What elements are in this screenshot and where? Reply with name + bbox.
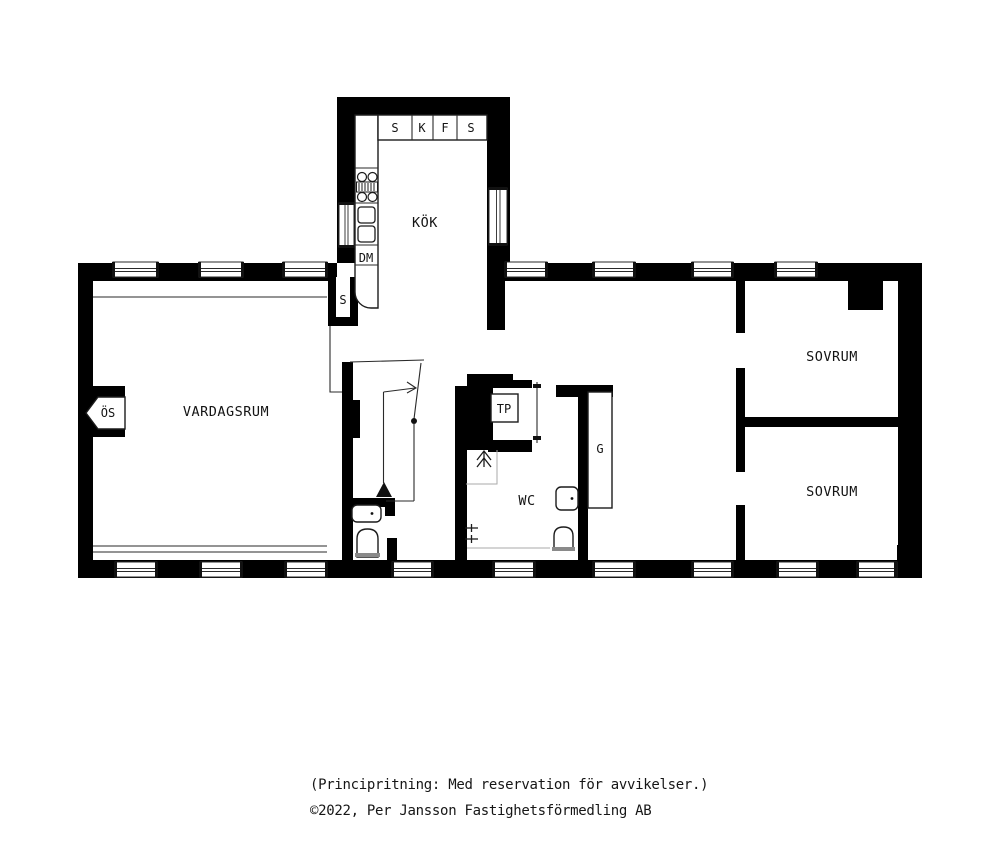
room-label-wc: WC (518, 493, 535, 509)
wc-right-wall (578, 386, 588, 560)
room-label-bedroom-bottom: SOVRUM (806, 484, 858, 500)
direction-arrowhead (407, 382, 416, 393)
entrance-arrow-icon (376, 482, 392, 497)
toilet-base (552, 547, 575, 551)
tp-top-bar-step (513, 380, 532, 388)
kitchen-fixtures (355, 115, 487, 308)
window (391, 562, 434, 577)
window (198, 262, 244, 277)
room-label-bedroom-top: SOVRUM (806, 349, 858, 365)
entry-threshold-line (350, 360, 424, 362)
cabinet-label-1: S (391, 121, 398, 135)
chimney-block (848, 281, 883, 310)
window (691, 262, 734, 277)
tp-top-bar (467, 374, 513, 388)
caption-line-1: (Principritning: Med reservation för avv… (310, 772, 708, 798)
window (199, 562, 243, 577)
cabinet-label-4: S (467, 121, 474, 135)
window (592, 262, 636, 277)
window (284, 562, 328, 577)
hall-left-wall (342, 362, 353, 560)
toilet-small-icon (357, 529, 378, 557)
wardrobe-label: G (596, 442, 603, 456)
kitchen-wall-top (337, 97, 510, 115)
dishwasher-label: DM (359, 251, 373, 265)
doorway-line (330, 326, 342, 392)
caption: (Principritning: Med reservation för avv… (310, 772, 708, 824)
hall-closet-label: S (339, 293, 346, 307)
bedroom-wall-upper (736, 263, 745, 333)
drying-cabinet-label: TP (497, 402, 511, 416)
washbasin-small-icon (352, 505, 381, 522)
shaft-block (455, 386, 493, 450)
tp-bottom-bar (488, 440, 532, 452)
floor-plan-drawing: KÖK VARDAGSRUM SOVRUM SOVRUM WC S K F S … (0, 0, 1000, 843)
door-pivot-dot (411, 418, 417, 424)
cabinet-label-3: F (441, 121, 448, 135)
toilet-icon (554, 527, 573, 550)
window (114, 562, 158, 577)
entry-door-leaf (414, 363, 421, 419)
windows-bottom (114, 562, 897, 577)
vent-arrow-icon (477, 451, 491, 467)
window (339, 202, 354, 248)
room-label-living-room: VARDAGSRUM (183, 404, 269, 420)
window (776, 562, 819, 577)
toilet-small-base (355, 553, 380, 557)
living-room-details (86, 297, 342, 552)
pilaster-bottom-right (897, 545, 922, 578)
window (112, 262, 159, 277)
stove-icon (357, 173, 378, 202)
floor-plan-page: KÖK VARDAGSRUM SOVRUM SOVRUM WC S K F S … (0, 0, 1000, 843)
caption-line-2: ©2022, Per Jansson Fastighetsförmedling … (310, 798, 708, 824)
window (592, 562, 636, 577)
bedroom-divider-wall (736, 417, 898, 427)
window (492, 562, 536, 577)
washbasin-icon (556, 487, 578, 510)
window (504, 262, 548, 277)
window (282, 262, 328, 277)
room-label-kitchen: KÖK (412, 213, 438, 231)
entry-stair-marks (350, 360, 424, 501)
kitchen-wall-right-stub (487, 281, 505, 330)
windows-top (112, 262, 818, 277)
window (856, 562, 897, 577)
window (774, 262, 818, 277)
cabinet-label-2: K (418, 121, 426, 135)
window (489, 187, 507, 246)
wc-left-wall (455, 450, 467, 560)
fireplace-label: ÖS (101, 404, 115, 420)
window (691, 562, 734, 577)
bedroom-wall-lower (736, 505, 745, 560)
wall-right (898, 263, 922, 578)
wc-small-right-wall-lower (387, 538, 397, 560)
hall-left-wall-pilaster (342, 400, 360, 438)
